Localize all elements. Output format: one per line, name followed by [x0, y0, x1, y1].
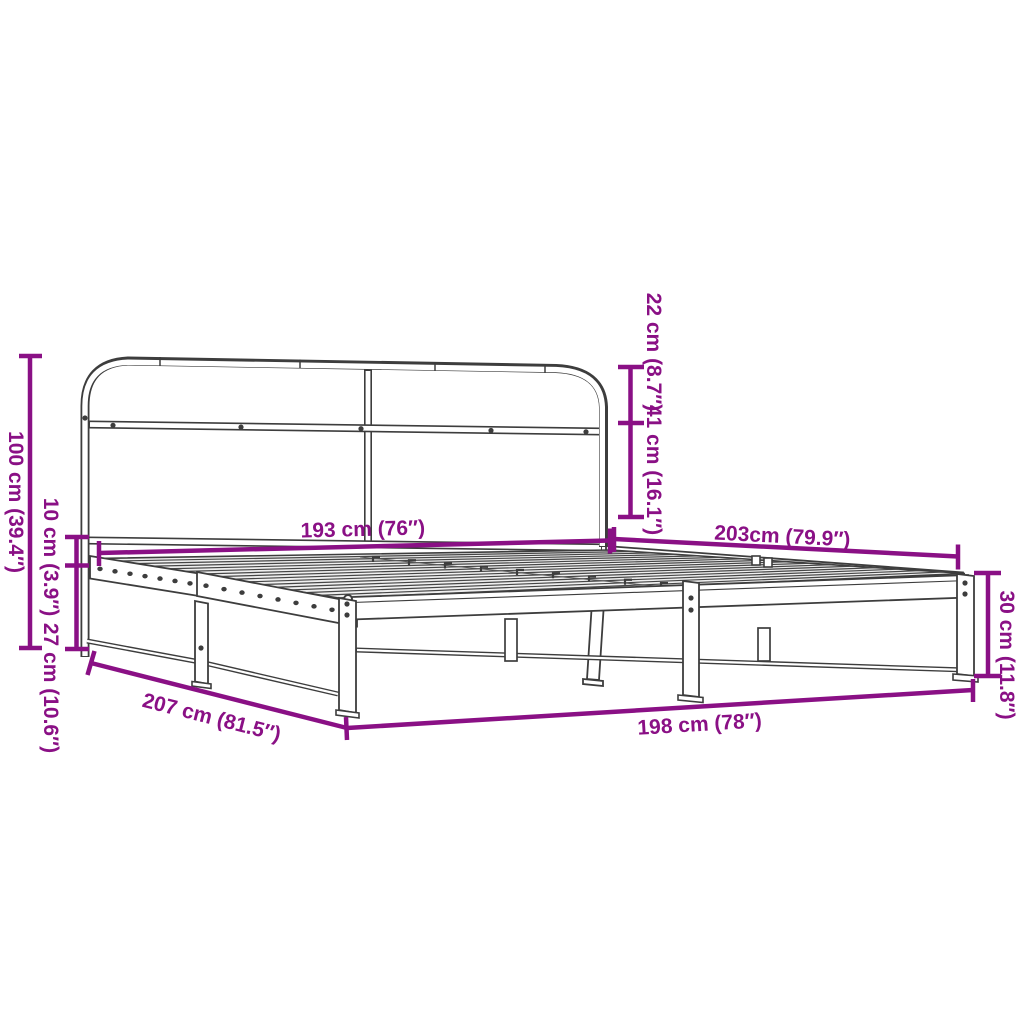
- bolt-dot: [962, 591, 967, 596]
- rail-hole: [187, 581, 192, 586]
- dim-rail-to-floor-label: 27 cm (10.6″): [39, 623, 62, 753]
- dim-headboard-sections: 22 cm (8.7″) 41 cm (16.1″): [618, 293, 665, 535]
- bolt-dot: [82, 415, 87, 420]
- rail-hole: [311, 604, 316, 609]
- rail-hole: [275, 597, 280, 602]
- dim-headboard-mid-section-label: 41 cm (16.1″): [642, 405, 665, 535]
- rail-hole: [142, 574, 147, 579]
- bolt-dot: [110, 423, 115, 428]
- left-lower-stretcher: [87, 641, 338, 694]
- bolt-dot: [962, 580, 967, 585]
- bolt-dot: [358, 426, 363, 431]
- rail-hole: [127, 571, 132, 576]
- rail-hole: [293, 601, 298, 606]
- bolt-dot: [583, 429, 588, 434]
- dim-total-length-label: 207 cm (81.5″): [140, 689, 283, 746]
- dim-headboard-width-label: 193 cm (76″): [300, 516, 425, 542]
- rail-hole: [221, 587, 226, 592]
- rail-hole: [239, 590, 244, 595]
- dim-headboard-top-section-label: 22 cm (8.7″): [642, 293, 665, 412]
- rail-hole: [257, 594, 262, 599]
- bolt-dot: [198, 645, 203, 650]
- diagram-canvas: 100 cm (39.4″) 10 cm (3.9″) 27 cm (10.6″…: [0, 0, 1024, 1024]
- dim-headboard-height-label: 100 cm (39.4″): [4, 431, 27, 573]
- dim-frame-height-label: 30 cm (11.8″): [995, 590, 1018, 719]
- bolt-dot: [688, 595, 693, 600]
- rail-hole: [329, 607, 334, 612]
- left-mid-leg: [192, 601, 211, 689]
- foot-right-corner-leg: [953, 574, 978, 682]
- dim-rail-top-offset-label: 10 cm (3.9″): [39, 498, 62, 617]
- rail-hole: [97, 567, 102, 572]
- bolt-dot: [688, 607, 693, 612]
- rail-hole: [172, 579, 177, 584]
- rail-hole: [157, 576, 162, 581]
- foot-strut-left: [505, 619, 517, 661]
- rail-hole: [203, 583, 208, 588]
- headboard-crossbar: [89, 425, 601, 432]
- dim-frame-height: 30 cm (11.8″): [974, 573, 1018, 720]
- bolt-dot: [238, 425, 243, 430]
- bolt-dot: [344, 612, 349, 617]
- foot-strut-right: [758, 628, 770, 661]
- bolt-dot: [488, 428, 493, 433]
- rail-hole: [112, 569, 117, 574]
- front-lower-stretcher: [356, 650, 966, 670]
- dim-headboard-height: 100 cm (39.4″): [4, 356, 42, 648]
- dim-frame-width: 198 cm (78″): [346, 679, 973, 740]
- bed-frame-dimension-diagram: 100 cm (39.4″) 10 cm (3.9″) 27 cm (10.6″…: [0, 0, 1024, 1024]
- dim-frame-width-label: 198 cm (78″): [637, 709, 763, 740]
- bolt-dot: [344, 601, 349, 606]
